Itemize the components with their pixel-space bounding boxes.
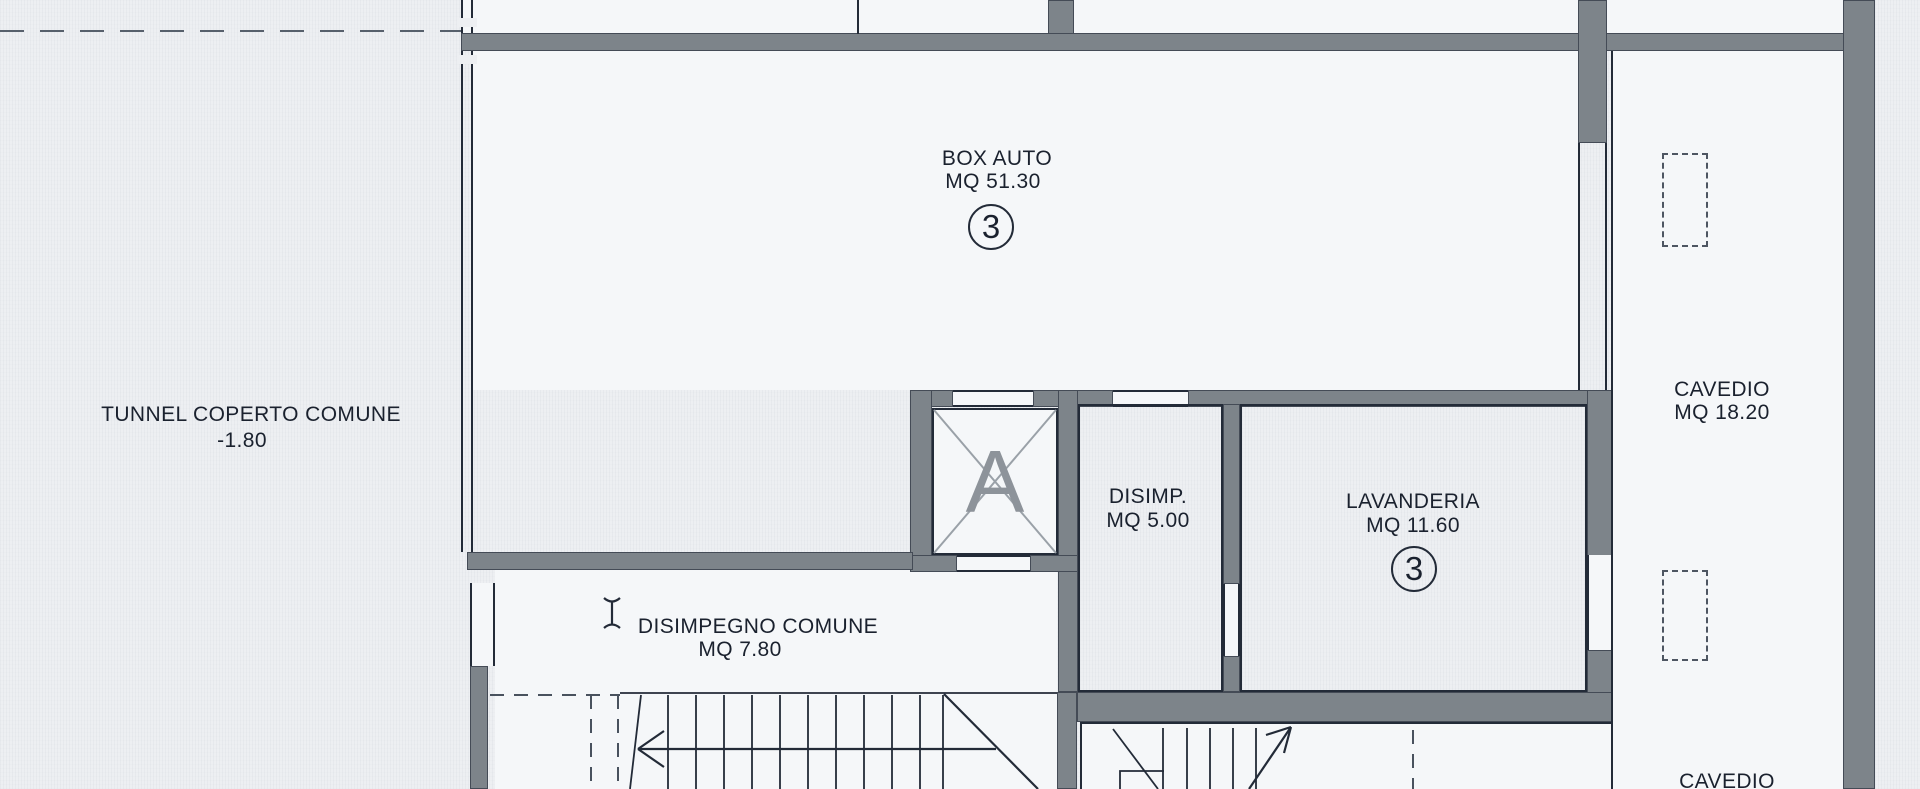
main-staircase	[490, 693, 1057, 789]
room-label-tunnel: TUNNEL COPERTO COMUNE	[101, 403, 401, 426]
area-label-cavedio: MQ 18.20	[1674, 401, 1769, 424]
stairs-and-symbols	[0, 0, 1920, 789]
unit-number-badge: 3	[968, 204, 1014, 250]
room-label-disimp: DISIMP.	[1109, 485, 1187, 508]
room-label-box-auto: BOX AUTO	[942, 147, 1052, 170]
level-label-tunnel: -1.80	[217, 429, 267, 452]
area-label-disimpegno-comune: MQ 7.80	[698, 638, 781, 661]
area-label-lavanderia: MQ 11.60	[1366, 514, 1460, 537]
room-label-disimpegno-comune: DISIMPEGNO COMUNE	[638, 615, 878, 638]
unit-number: 3	[1405, 550, 1423, 588]
lower-staircase	[1113, 727, 1413, 789]
floor-plan-canvas: TUNNEL COPERTO COMUNE -1.80 BOX AUTO MQ …	[0, 0, 1920, 789]
area-label-box-auto: MQ 51.30	[945, 170, 1040, 193]
room-label-lavanderia: LAVANDERIA	[1346, 490, 1480, 513]
unit-number-badge: 3	[1391, 546, 1437, 592]
area-label-disimp: MQ 5.00	[1106, 509, 1189, 532]
text-cursor-icon	[604, 598, 620, 628]
room-label-cavedio: CAVEDIO	[1674, 378, 1770, 401]
room-label-cavedio-lower: CAVEDIO	[1679, 770, 1775, 789]
elevator-letter: A	[930, 434, 1060, 530]
unit-number: 3	[982, 208, 1000, 246]
